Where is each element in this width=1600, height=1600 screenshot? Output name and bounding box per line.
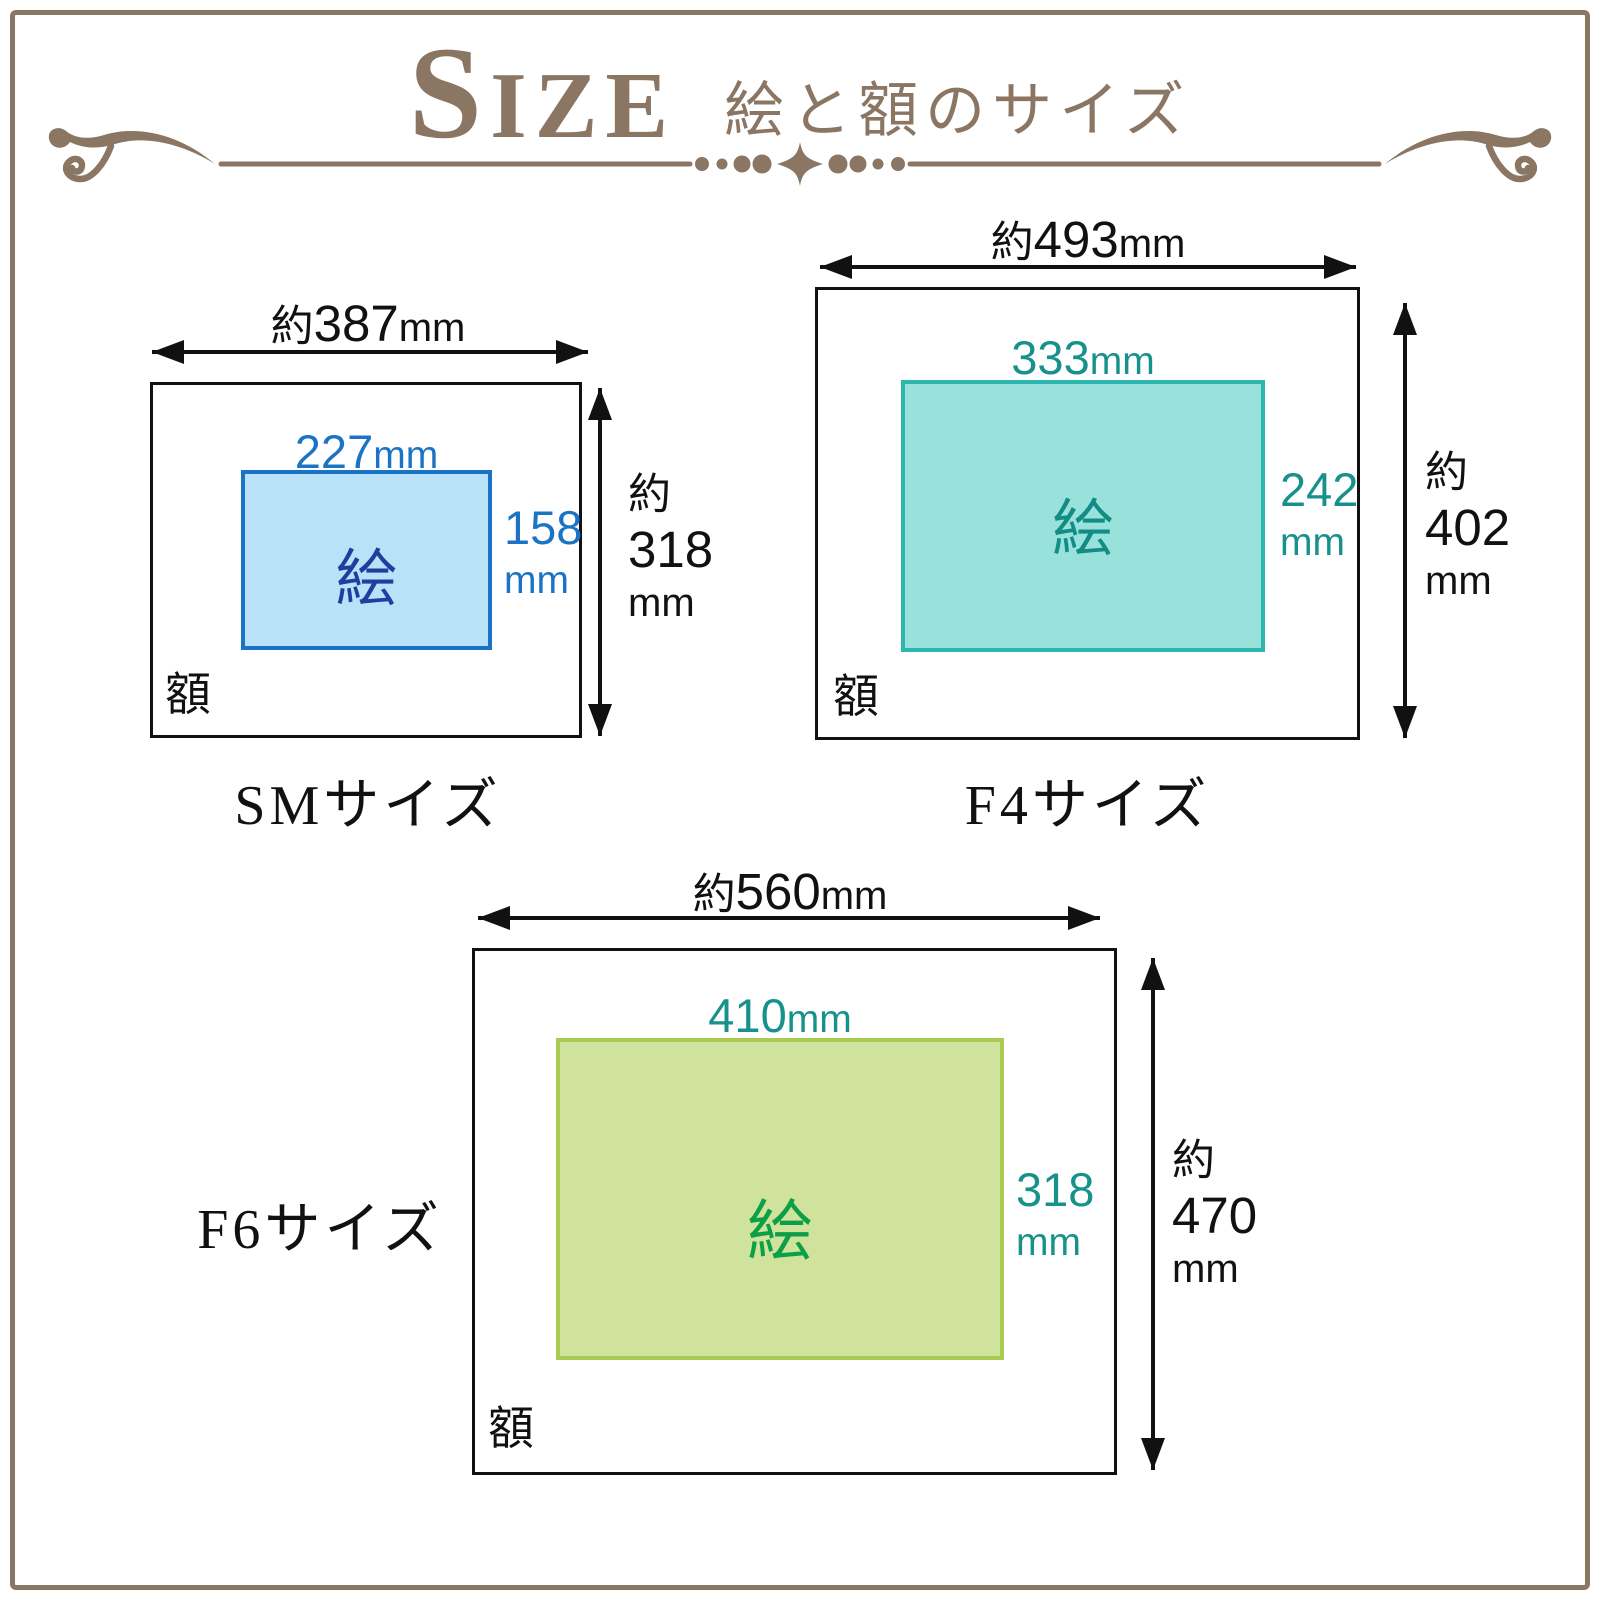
dimension-value: 387 — [314, 295, 399, 352]
flourish-left-icon — [49, 128, 215, 179]
dimension-unit: mm — [1090, 340, 1155, 383]
dimension-value: 158 — [504, 500, 582, 556]
dimension-unit: mm — [1425, 556, 1510, 606]
approx-prefix: 約 — [991, 219, 1034, 267]
height-arrow-sm — [598, 388, 602, 736]
dimension-value: 402 — [1425, 500, 1510, 556]
art-kanji-f6: 絵 — [556, 1178, 1004, 1274]
dimension-unit: mm — [399, 306, 466, 350]
art-height-label-f4: 242 mm — [1280, 462, 1358, 568]
divider-dot — [829, 155, 848, 174]
approx-prefix: 約 — [628, 468, 713, 522]
dimension-value: 493 — [1034, 211, 1119, 268]
dimension-value: 410 — [708, 989, 786, 1042]
divider-dot — [891, 157, 905, 171]
divider-dot — [753, 155, 772, 174]
frame-width-label-sm: 約387mm — [150, 292, 586, 354]
size-name-f4: F4サイズ — [815, 760, 1360, 841]
frame-kanji-f6: 額 — [488, 1392, 534, 1458]
dimension-unit: mm — [821, 874, 888, 918]
width-arrow-f4 — [820, 265, 1356, 269]
approx-prefix: 約 — [693, 871, 736, 919]
art-kanji-f4: 絵 — [901, 478, 1265, 568]
dimension-unit: mm — [504, 556, 582, 606]
dimension-unit: mm — [628, 578, 713, 628]
frame-height-label-f6: 約 470 mm — [1172, 1134, 1257, 1294]
width-arrow-f6 — [478, 916, 1100, 920]
frame-width-label-f6: 約560mm — [480, 860, 1100, 922]
art-height-label-sm: 158 mm — [504, 500, 582, 606]
size-name-f6: F6サイズ — [130, 1184, 510, 1265]
approx-prefix: 約 — [1425, 446, 1510, 500]
flourish-right-icon — [1385, 128, 1551, 179]
dimension-value: 318 — [628, 522, 713, 578]
approx-prefix: 約 — [271, 303, 314, 351]
dimension-unit: mm — [1172, 1244, 1257, 1294]
art-width-label-f4: 333mm — [901, 330, 1265, 385]
approx-prefix: 約 — [1172, 1134, 1257, 1188]
dimension-unit: mm — [1119, 222, 1186, 266]
frame-height-label-sm: 約 318 mm — [628, 468, 713, 628]
dimension-value: 333 — [1011, 331, 1089, 384]
divider-dot — [850, 156, 867, 173]
dimension-value: 318 — [1016, 1162, 1094, 1218]
dimension-value: 242 — [1280, 462, 1358, 518]
size-name-sm: SMサイズ — [150, 760, 586, 841]
frame-width-label-f4: 約493mm — [818, 208, 1358, 270]
star-diamond-icon — [777, 142, 823, 186]
divider-dot — [873, 159, 884, 170]
width-arrow-sm — [152, 350, 588, 354]
divider-dot — [717, 159, 728, 170]
frame-height-label-f4: 約 402 mm — [1425, 446, 1510, 606]
dimension-unit: mm — [1016, 1218, 1094, 1268]
dimension-unit: mm — [1280, 518, 1358, 568]
art-kanji-sm: 絵 — [241, 528, 492, 618]
height-arrow-f4 — [1403, 303, 1407, 738]
dimension-value: 560 — [736, 863, 821, 920]
frame-kanji-f4: 額 — [833, 660, 879, 726]
dimension-unit: mm — [787, 998, 852, 1041]
divider-dot — [734, 156, 751, 173]
art-height-label-f6: 318 mm — [1016, 1162, 1094, 1268]
frame-kanji-sm: 額 — [165, 658, 211, 724]
size-infographic: SIZE 絵と額のサイズ 約387mm — [0, 0, 1600, 1600]
divider-ornament — [40, 122, 1560, 202]
art-width-label-f6: 410mm — [556, 988, 1004, 1043]
divider-dot — [695, 157, 709, 171]
dimension-value: 470 — [1172, 1188, 1257, 1244]
height-arrow-f6 — [1151, 958, 1155, 1470]
